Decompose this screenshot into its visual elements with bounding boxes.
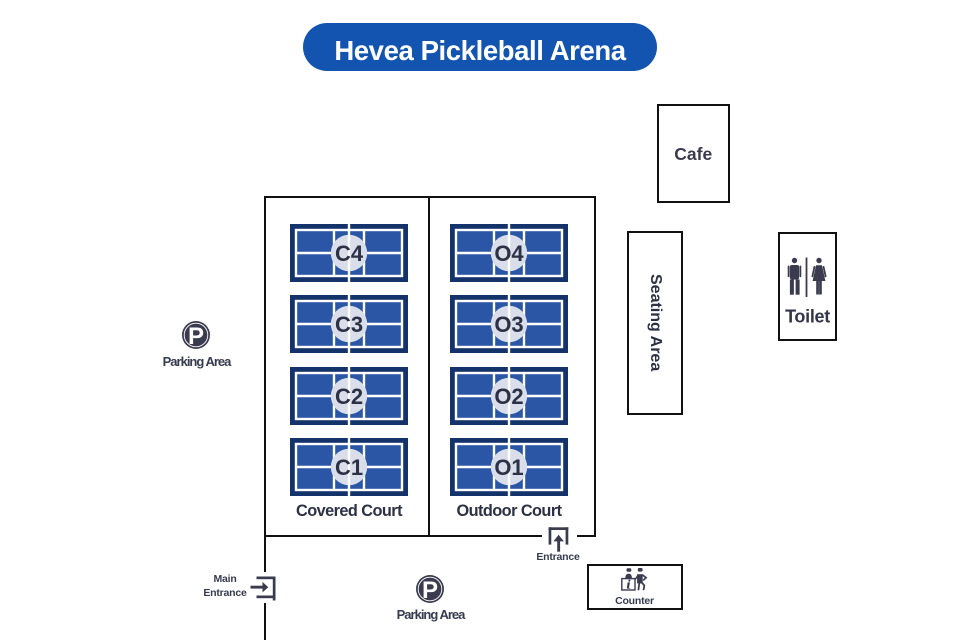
svg-text:C2: C2 bbox=[335, 384, 363, 409]
svg-text:C4: C4 bbox=[335, 241, 364, 266]
svg-text:C3: C3 bbox=[335, 312, 363, 337]
svg-text:Toilet: Toilet bbox=[785, 306, 830, 326]
svg-text:P: P bbox=[188, 323, 204, 349]
svg-text:O1: O1 bbox=[494, 455, 523, 480]
svg-text:O3: O3 bbox=[494, 312, 523, 337]
svg-text:O2: O2 bbox=[494, 384, 523, 409]
svg-text:O4: O4 bbox=[494, 241, 524, 266]
svg-text:C1: C1 bbox=[335, 455, 363, 480]
svg-text:P: P bbox=[422, 577, 438, 603]
